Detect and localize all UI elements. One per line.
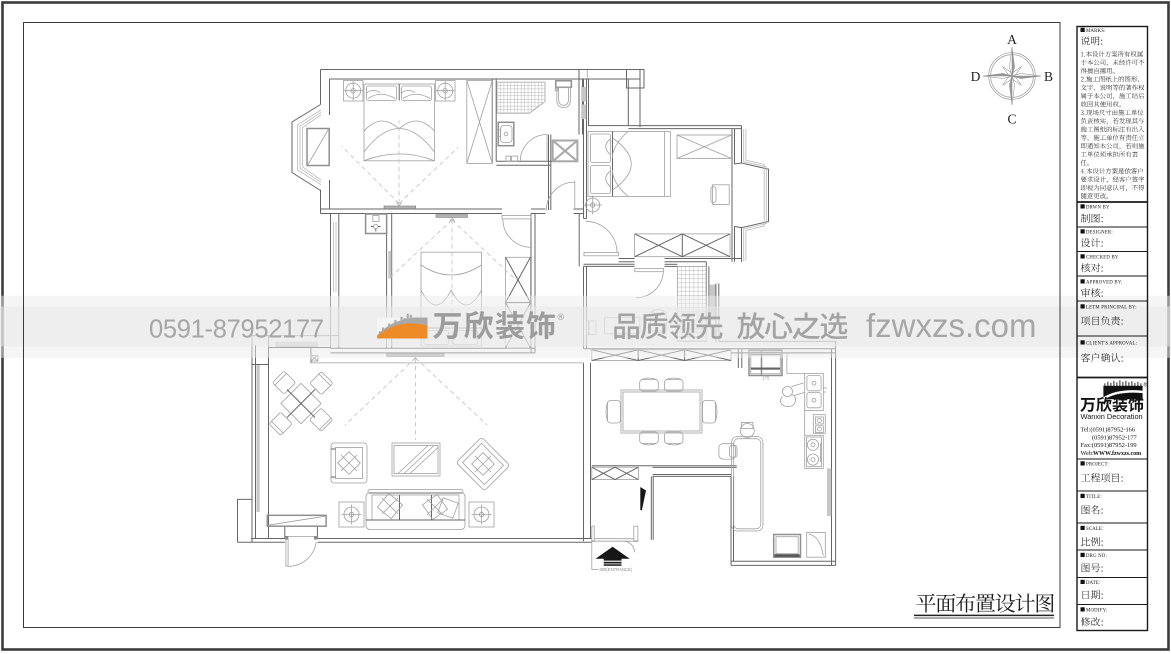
svg-text:fzwxzs.com: fzwxzs.com — [866, 307, 1037, 344]
svg-text:MARKS:: MARKS: — [1086, 29, 1106, 34]
svg-text:DRWN BY: DRWN BY — [1086, 206, 1110, 211]
svg-text:®: ® — [558, 312, 565, 322]
svg-text:A: A — [1007, 32, 1017, 47]
svg-text:LETM PRINCIPAL BY:: LETM PRINCIPAL BY: — [1086, 306, 1137, 311]
svg-text:0591-87952177: 0591-87952177 — [149, 316, 324, 344]
svg-text:Tel:(0591)87952-166: Tel:(0591)87952-166 — [1081, 427, 1136, 434]
svg-text:CHECKED BY: CHECKED BY — [1086, 256, 1119, 261]
svg-text:WWW.fzwxzs.com: WWW.fzwxzs.com — [1093, 451, 1141, 457]
svg-text:D: D — [971, 69, 981, 84]
svg-text:PROJECT:: PROJECT: — [1086, 463, 1109, 468]
svg-text:Fax:(0591)87952-199: Fax:(0591)87952-199 — [1081, 442, 1137, 449]
svg-text:TITLE:: TITLE: — [1086, 495, 1102, 500]
svg-text:DRG NO:: DRG NO: — [1086, 554, 1107, 559]
svg-text:SCALE:: SCALE: — [1086, 527, 1104, 532]
svg-text:MODIFY:: MODIFY: — [1086, 609, 1107, 614]
svg-text:(0591)87952-177: (0591)87952-177 — [1092, 435, 1138, 442]
svg-text:175: 175 — [762, 376, 770, 381]
svg-text:DESIGNER:: DESIGNER: — [1086, 231, 1113, 236]
svg-text:®: ® — [1144, 382, 1148, 389]
svg-text:APPROVED BY:: APPROVED BY: — [1086, 281, 1122, 286]
svg-text:DATE:: DATE: — [1086, 581, 1101, 586]
svg-text:C: C — [1007, 112, 1016, 127]
svg-text:CLIENT'S APPROVAL:: CLIENT'S APPROVAL: — [1086, 342, 1137, 347]
svg-text:Wanxin Decoration: Wanxin Decoration — [1081, 412, 1143, 421]
svg-text:-300(ENTRANCE): -300(ENTRANCE) — [598, 567, 633, 572]
svg-text:B: B — [1044, 69, 1053, 84]
